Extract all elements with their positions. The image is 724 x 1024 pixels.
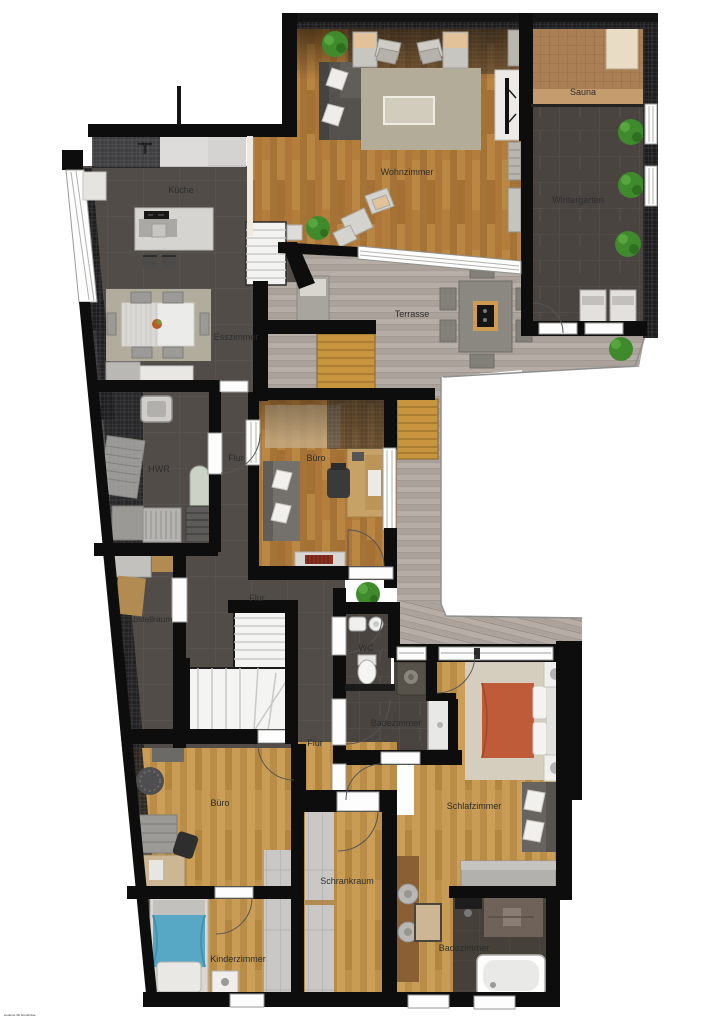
svg-text:Wintergarten: Wintergarten xyxy=(552,195,604,205)
svg-text:Schlafzimmer: Schlafzimmer xyxy=(447,801,502,811)
svg-text:HWR: HWR xyxy=(148,464,170,474)
svg-text:Flur: Flur xyxy=(249,593,265,603)
svg-text:WC: WC xyxy=(359,643,374,653)
svg-text:Kinderzimmer: Kinderzimmer xyxy=(210,954,266,964)
svg-text:Büro: Büro xyxy=(306,453,325,463)
svg-text:Küche: Küche xyxy=(168,185,194,195)
svg-text:Terrasse: Terrasse xyxy=(395,309,430,319)
svg-text:Flur: Flur xyxy=(307,738,323,748)
svg-text:Badezimmer: Badezimmer xyxy=(439,943,490,953)
svg-text:Schrankraum: Schrankraum xyxy=(320,876,374,886)
svg-text:Abstellraum: Abstellraum xyxy=(128,614,173,624)
svg-text:Sauna: Sauna xyxy=(570,87,596,97)
svg-text:Badezimmer: Badezimmer xyxy=(371,718,422,728)
svg-text:Flur: Flur xyxy=(228,453,244,463)
svg-text:Wohnzimmer: Wohnzimmer xyxy=(381,167,434,177)
svg-text:Esszimmer: Esszimmer xyxy=(214,332,259,342)
svg-text:Büro: Büro xyxy=(210,798,229,808)
svg-text:wodomo 3D Grundrisse: wodomo 3D Grundrisse xyxy=(4,1013,36,1017)
